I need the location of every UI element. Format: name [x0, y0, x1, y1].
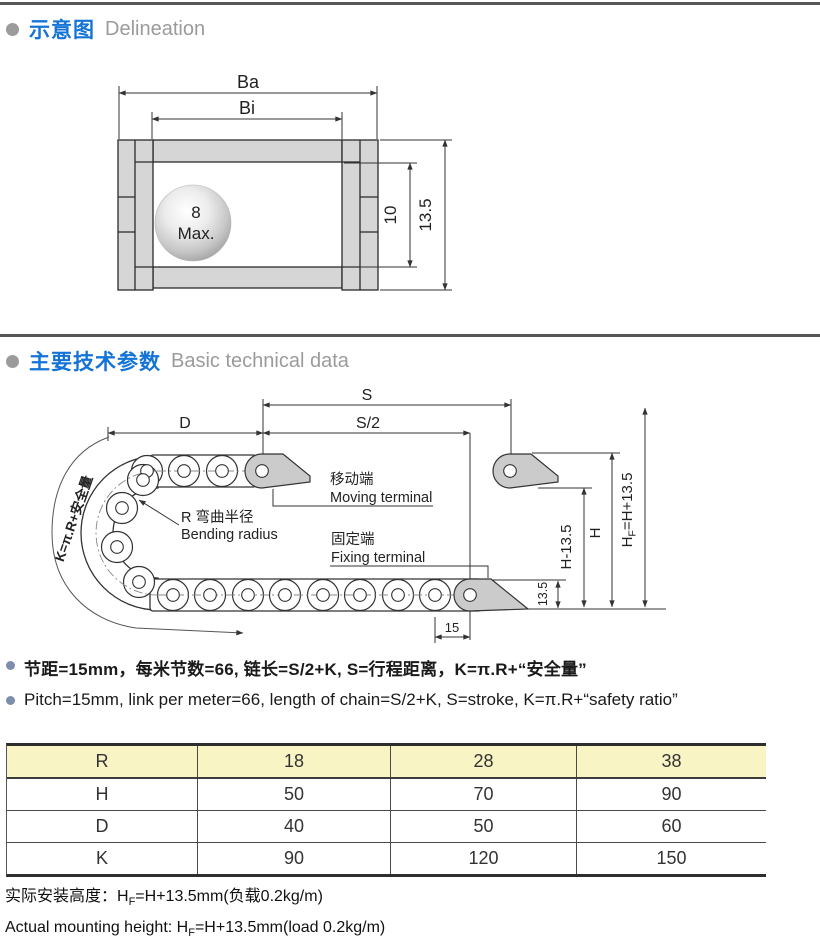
dim-bi: Bi: [152, 98, 342, 139]
table-cell: 150: [576, 843, 766, 874]
label-d: D: [179, 415, 191, 432]
svg-text:移动端: 移动端: [330, 471, 374, 488]
table-row: D 40 50 60: [7, 811, 766, 843]
chain-cross-section: 8 Max.: [118, 140, 378, 290]
section1-title-zh: 示意图: [29, 14, 95, 44]
label-10: 10: [381, 206, 400, 225]
section2-title-zh: 主要技术参数: [29, 346, 161, 376]
catalog-page: 示意图 Delineation Ba: [0, 0, 820, 940]
dim-hf: HF=H+13.5: [619, 408, 645, 607]
table-cell: 70: [390, 779, 576, 810]
label-h-minus: H-13.5: [558, 524, 575, 569]
label-bi: Bi: [239, 98, 255, 118]
note-bullet-icon: [6, 696, 15, 705]
label-s-half: S/2: [356, 415, 380, 432]
table-cell: 90: [197, 843, 390, 874]
note-en: Pitch=15mm, link per meter=66, length of…: [6, 690, 806, 710]
fixing-terminal-label: 固定端 Fixing terminal: [330, 531, 488, 578]
note-bullet-icon: [6, 661, 15, 670]
svg-text:固定端: 固定端: [331, 531, 375, 548]
svg-text:Moving terminal: Moving terminal: [330, 490, 432, 506]
section-technical-header: 主要技术参数 Basic technical data: [0, 334, 820, 376]
cross-section-diagram: Ba Bi 8 Max.: [0, 60, 820, 310]
table-cell: 90: [576, 779, 766, 810]
cable-ball: [155, 185, 231, 261]
section-bullet-icon: [6, 355, 19, 368]
section1-title-en: Delineation: [105, 18, 205, 41]
moving-terminal-bracket-detached: [493, 454, 558, 488]
spec-table: R 18 28 38 H 50 70 90 D 40 50 60 K 90 12…: [6, 743, 766, 877]
section2-title-en: Basic technical data: [171, 350, 349, 373]
svg-text:Fixing terminal: Fixing terminal: [331, 550, 425, 566]
label-15: 15: [445, 620, 459, 635]
table-cell: 50: [197, 779, 390, 810]
label-ba: Ba: [237, 72, 260, 92]
moving-terminal-bracket: [245, 454, 310, 488]
table-row-label: H: [7, 779, 197, 810]
table-cell: 40: [197, 811, 390, 842]
table-cell: 120: [390, 843, 576, 874]
table-row-label: K: [7, 843, 197, 874]
mounting-height-note: 实际安装高度：HF=H+13.5mm(负载0.2kg/m) Actual mou…: [5, 884, 385, 940]
table-header-label: R: [7, 746, 197, 777]
note-en-text: Pitch=15mm, link per meter=66, length of…: [24, 690, 678, 710]
bend-diagram: S S/2 D K=π.R+安全量: [0, 385, 820, 647]
table-cell: 38: [576, 746, 766, 777]
table-cell: 60: [576, 811, 766, 842]
table-cell: 28: [390, 746, 576, 777]
section-bullet-icon: [6, 23, 19, 36]
label-h: H: [587, 528, 604, 539]
table-row: K 90 120 150: [7, 843, 766, 874]
section-delineation-header: 示意图 Delineation: [0, 2, 820, 44]
note-zh: 节距=15mm，每米节数=66, 链长=S/2+K, S=行程距离，K=π.R+…: [6, 655, 806, 680]
mounting-height-zh: 实际安装高度：HF=H+13.5mm(负载0.2kg/m): [5, 884, 385, 915]
bending-radius-label: R 弯曲半径 Bending radius: [139, 500, 278, 543]
ball-max-label: Max.: [178, 224, 215, 243]
label-hf: HF=H+13.5: [619, 473, 639, 548]
dim-s: S: [263, 387, 511, 471]
table-cell: 18: [197, 746, 390, 777]
label-135-bottom: 13.5: [536, 582, 550, 606]
ball-diameter: 8: [191, 203, 200, 222]
label-13-5: 13.5: [416, 198, 435, 231]
note-zh-text: 节距=15mm，每米节数=66, 链长=S/2+K, S=行程距离，K=π.R+…: [24, 655, 587, 680]
table-row: R 18 28 38: [7, 746, 766, 779]
dim-15: 15: [435, 617, 470, 643]
dim-d: D: [108, 415, 263, 441]
svg-text:Bending radius: Bending radius: [181, 527, 278, 543]
label-s: S: [362, 387, 373, 404]
mounting-height-en: Actual mounting height: HF=H+13.5mm(load…: [5, 915, 385, 940]
table-cell: 50: [390, 811, 576, 842]
table-row: H 50 70 90: [7, 779, 766, 811]
svg-text:R 弯曲半径: R 弯曲半径: [181, 509, 254, 526]
table-row-label: D: [7, 811, 197, 842]
